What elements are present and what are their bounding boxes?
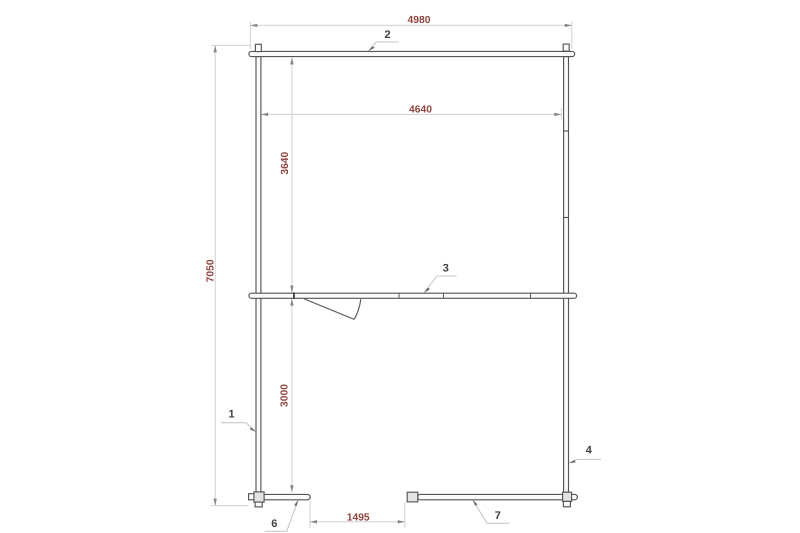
svg-text:4640: 4640 xyxy=(409,105,432,116)
svg-text:2: 2 xyxy=(385,29,391,41)
svg-text:7: 7 xyxy=(495,510,501,522)
svg-text:6: 6 xyxy=(271,518,277,530)
svg-text:3000: 3000 xyxy=(280,384,291,407)
svg-text:4: 4 xyxy=(586,445,593,457)
svg-text:3: 3 xyxy=(443,263,449,275)
svg-text:1495: 1495 xyxy=(347,513,370,524)
svg-text:4980: 4980 xyxy=(408,15,431,26)
svg-text:7050: 7050 xyxy=(205,259,216,282)
svg-text:1: 1 xyxy=(229,408,235,420)
svg-text:3640: 3640 xyxy=(280,151,291,174)
